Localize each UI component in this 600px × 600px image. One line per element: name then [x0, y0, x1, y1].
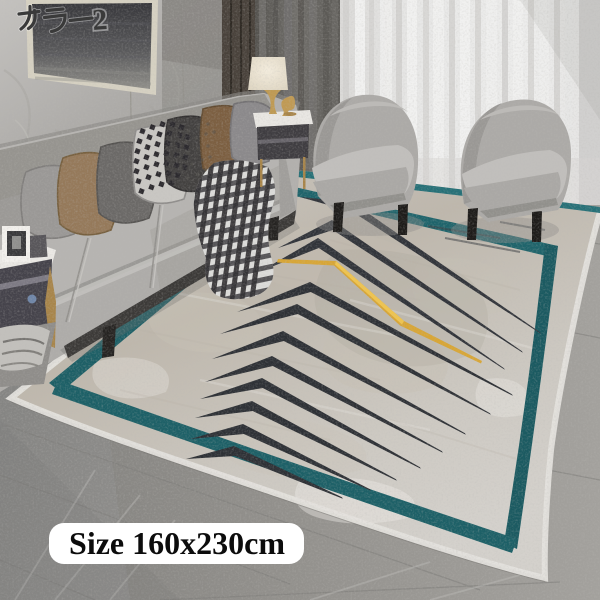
- svg-text:2: 2: [91, 3, 108, 37]
- svg-text:Size 160x230cm: Size 160x230cm: [69, 525, 285, 561]
